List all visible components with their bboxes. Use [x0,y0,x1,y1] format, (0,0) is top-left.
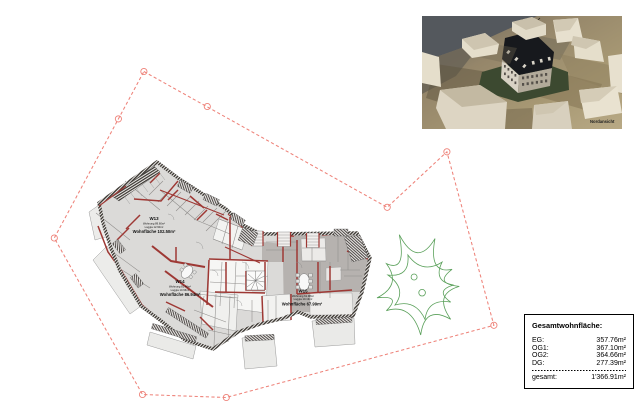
svg-text:Nordansicht: Nordansicht [590,119,615,124]
svg-text:Wohnfläche 86.94m²: Wohnfläche 86.94m² [160,292,201,297]
svg-text:W15: W15 [298,289,308,294]
svg-text:W13: W13 [149,216,159,221]
svg-text:W14: W14 [175,279,185,284]
svg-text:Wohnfläche 102.50m²: Wohnfläche 102.50m² [133,229,176,234]
svg-text:Wohnfläche 67.99m²: Wohnfläche 67.99m² [282,302,323,307]
